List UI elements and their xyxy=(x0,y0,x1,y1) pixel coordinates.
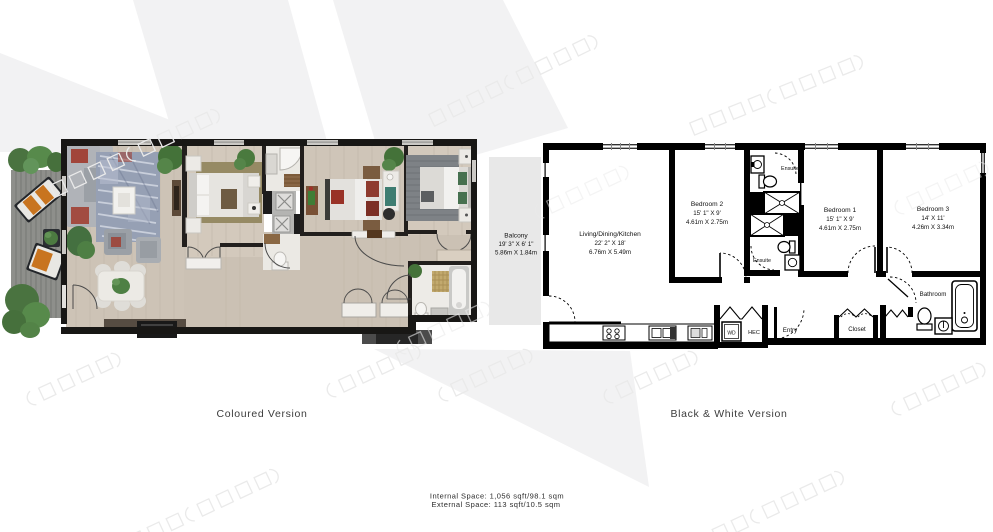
svg-text:Bathroom: Bathroom xyxy=(920,291,947,298)
svg-text:15' 1" X 9': 15' 1" X 9' xyxy=(826,216,854,223)
svg-text:Balcony: Balcony xyxy=(504,233,528,240)
svg-text:4.61m X 2.75m: 4.61m X 2.75m xyxy=(819,225,861,232)
svg-text:Bedroom 2: Bedroom 2 xyxy=(691,201,724,208)
svg-text:5.86m X 1.84m: 5.86m X 1.84m xyxy=(495,250,537,257)
svg-text:15' 1" X 9': 15' 1" X 9' xyxy=(693,210,721,217)
svg-text:External Space: 113 sqft/10.5: External Space: 113 sqft/10.5 sqm xyxy=(432,500,561,509)
svg-text:4.26m X 3.34m: 4.26m X 3.34m xyxy=(912,224,954,231)
svg-text:Entry: Entry xyxy=(783,327,798,334)
svg-text:Living/Dining/Kitchen: Living/Dining/Kitchen xyxy=(579,231,641,238)
svg-text:14' X 11': 14' X 11' xyxy=(921,215,944,222)
svg-text:22' 2" X 18': 22' 2" X 18' xyxy=(594,240,625,247)
svg-text:HEC: HEC xyxy=(748,330,760,336)
svg-text:6.76m X 5.49m: 6.76m X 5.49m xyxy=(589,249,631,256)
svg-text:Bedroom 1: Bedroom 1 xyxy=(824,207,857,214)
svg-text:Black & White Version: Black & White Version xyxy=(671,408,788,420)
svg-text:Ensuite: Ensuite xyxy=(781,166,799,172)
svg-text:19' 3" X 6' 1": 19' 3" X 6' 1" xyxy=(499,241,534,248)
svg-text:Coloured Version: Coloured Version xyxy=(217,408,308,420)
svg-text:WD: WD xyxy=(727,331,736,337)
svg-text:Closet: Closet xyxy=(848,326,866,333)
svg-text:Bedroom 3: Bedroom 3 xyxy=(917,206,950,213)
svg-text:4.61m X 2.75m: 4.61m X 2.75m xyxy=(686,219,728,226)
